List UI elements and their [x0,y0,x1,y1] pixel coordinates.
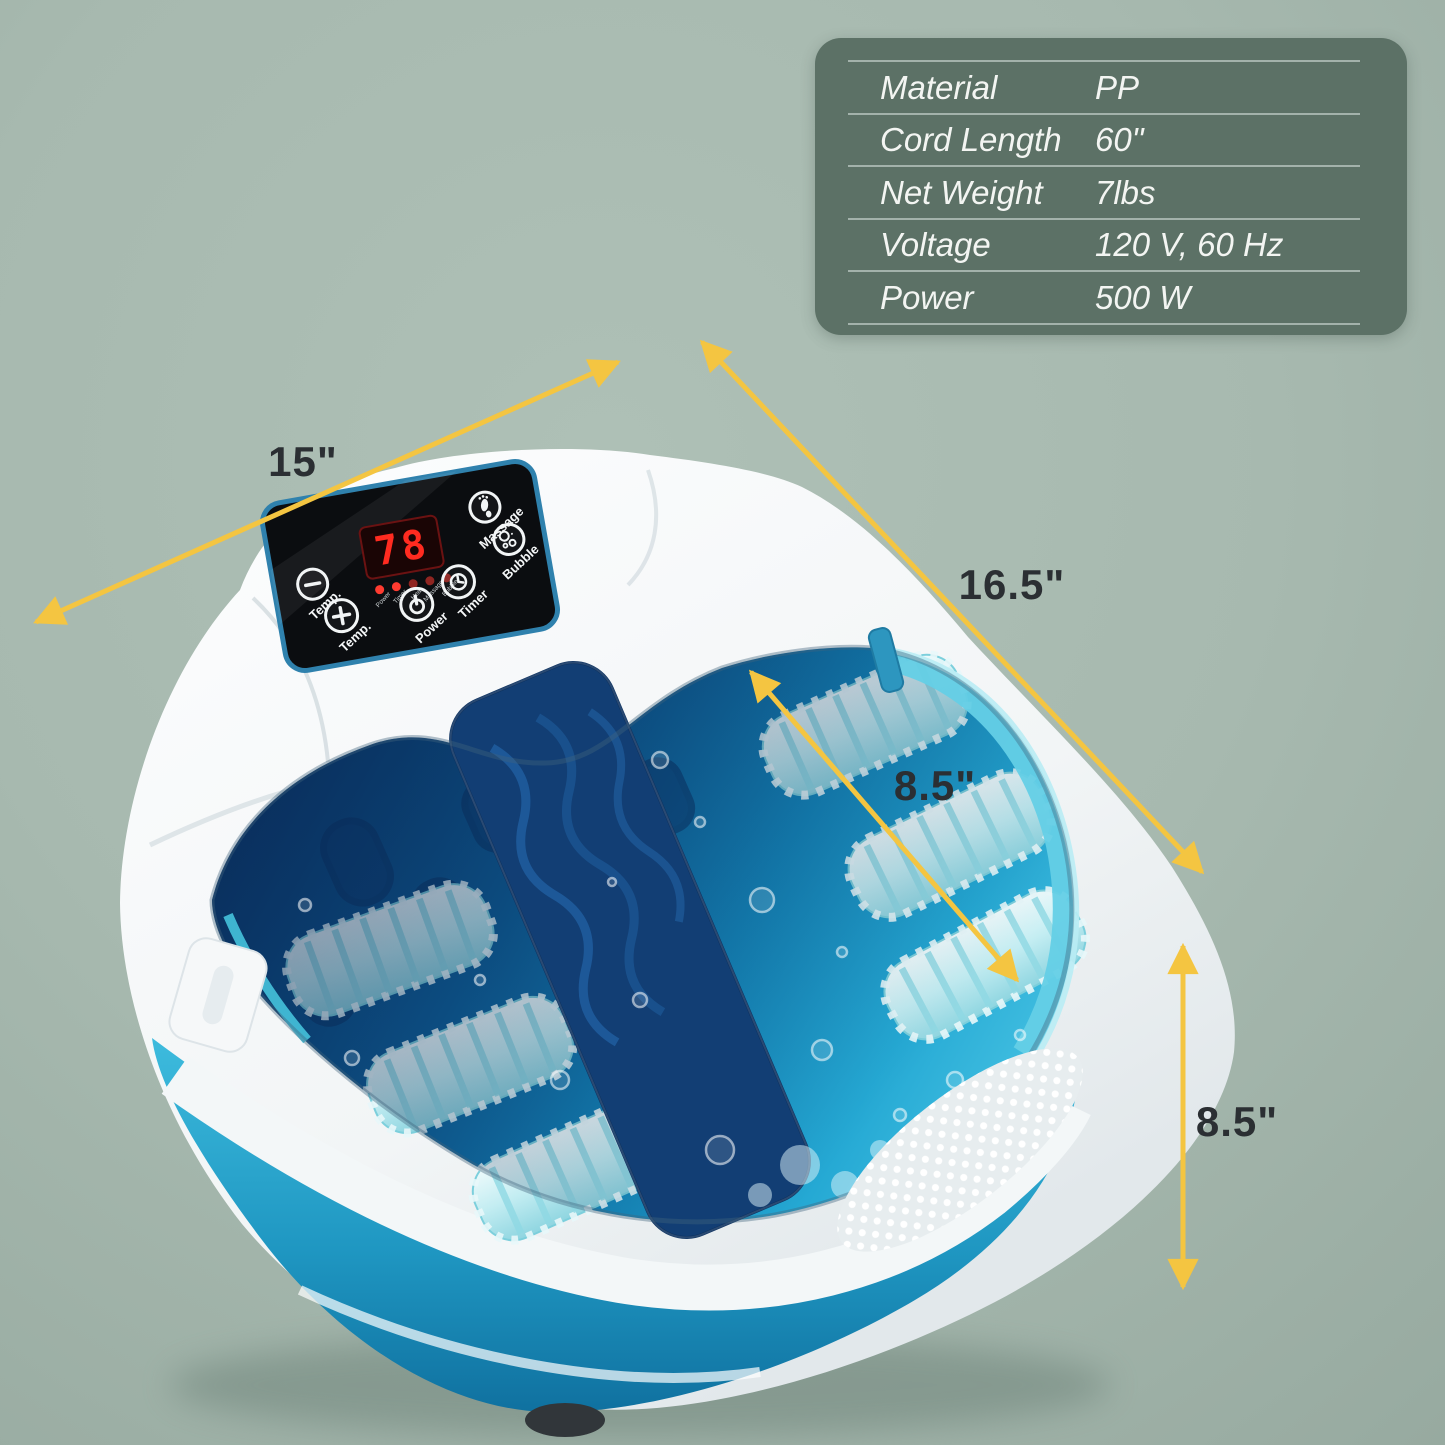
spec-row-net-weight: Net Weight 7lbs [848,165,1360,218]
product-photo-stage: 78 Power Timer Heat Massage Bubble [0,0,1445,1445]
dim-label-top-width: 15" [268,438,338,486]
led-display-value: 78 [371,521,432,576]
spec-row-voltage: Voltage 120 V, 60 Hz [848,218,1360,271]
rubber-foot [525,1403,605,1437]
dim-label-inner-width: 8.5" [894,762,976,810]
spec-table: Material PP Cord Length 60" Net Weight 7… [815,38,1407,335]
dim-label-depth: 16.5" [959,561,1066,609]
spec-row-cord-length: Cord Length 60" [848,113,1360,166]
spec-label: Material [848,71,1095,104]
spec-label: Net Weight [848,176,1095,209]
dim-label-height: 8.5" [1196,1098,1278,1146]
spec-label: Cord Length [848,123,1095,156]
spec-value: 500 W [1095,281,1360,314]
spec-value: 120 V, 60 Hz [1095,228,1360,261]
spec-label: Power [848,281,1095,314]
spec-row-material: Material PP [848,60,1360,113]
spec-value: 60" [1095,123,1360,156]
spec-value: PP [1095,71,1360,104]
spec-row-power: Power 500 W [848,270,1360,325]
minus-icon [306,583,320,585]
spec-table-rows: Material PP Cord Length 60" Net Weight 7… [848,60,1360,325]
spec-label: Voltage [848,228,1095,261]
spec-value: 7lbs [1095,176,1360,209]
